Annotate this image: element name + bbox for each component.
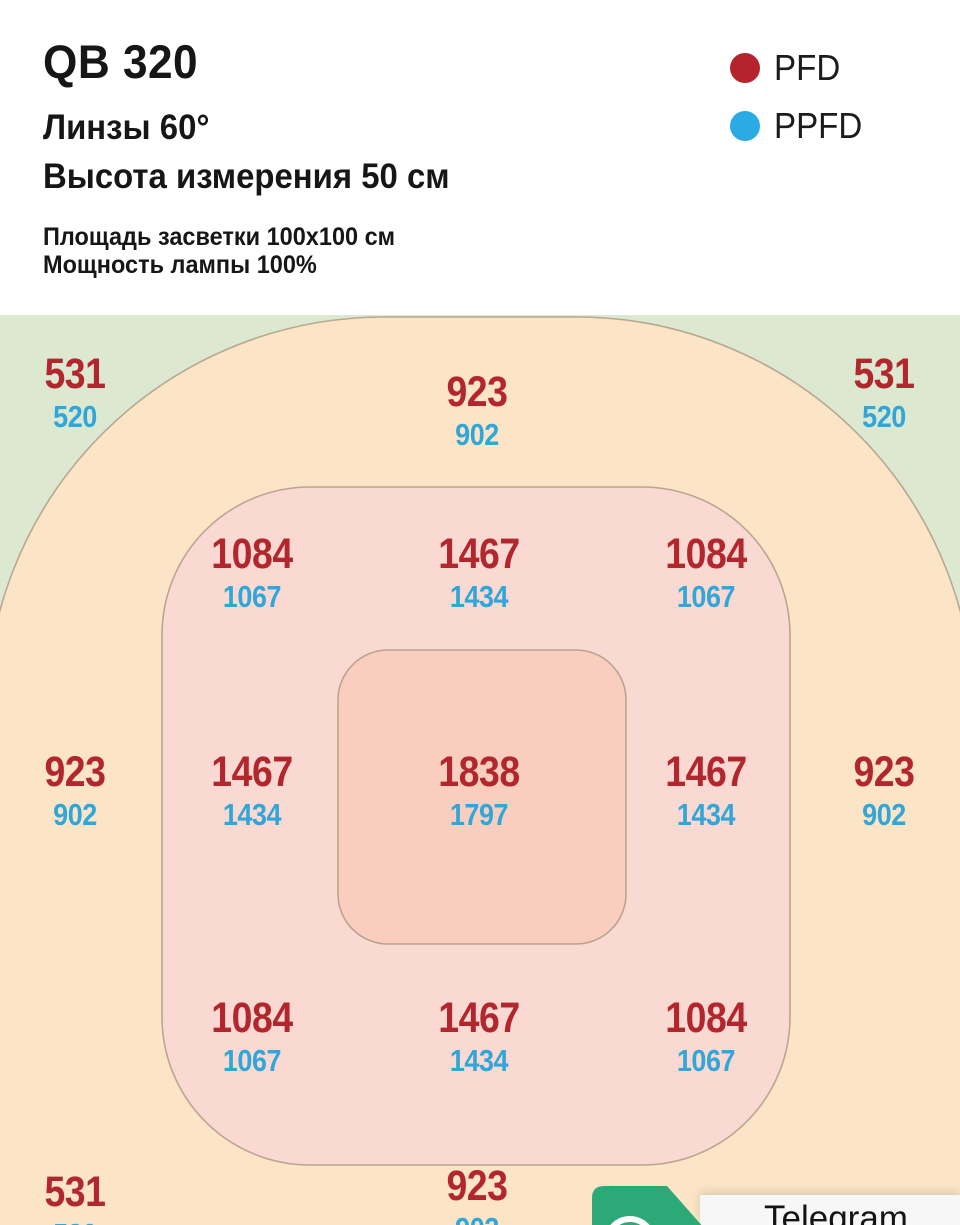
subtitle-measure-height: Высота измерения 50 см — [43, 159, 450, 194]
pfd-value: 1084 — [665, 533, 746, 576]
measurement-point-inner-top-edge: 14671434 — [438, 533, 519, 613]
note-light-area: Площадь засветки 100x100 см — [43, 225, 395, 250]
ppfd-value: 520 — [853, 400, 914, 433]
telegram-tag-icon — [585, 1183, 725, 1225]
telegram-banner: Telegram — [700, 1195, 960, 1225]
ppfd-value: 1434 — [438, 580, 519, 613]
legend-label-pfd: PFD — [774, 50, 840, 86]
ppfd-dot-icon — [730, 111, 760, 141]
ppfd-value: 1797 — [438, 798, 519, 831]
measurement-point-inner-bottom-edge: 14671434 — [438, 997, 519, 1077]
measurement-point-inner-bottom-left: 10841067 — [211, 997, 292, 1077]
note-lamp-power: Мощность лампы 100% — [43, 253, 317, 278]
measurement-point-top-left-corner: 531520 — [44, 353, 105, 433]
measurement-point-right-edge: 923902 — [853, 751, 914, 831]
ppfd-value: 902 — [853, 798, 914, 831]
measurement-point-left-edge: 923902 — [44, 751, 105, 831]
measurement-point-top-edge: 923902 — [446, 371, 507, 451]
legend: PFD PPFD — [730, 50, 870, 166]
light-distribution-infographic: QB 320 Линзы 60° Высота измерения 50 см … — [0, 0, 960, 1225]
pfd-value: 1467 — [438, 533, 519, 576]
ppfd-value: 520 — [44, 400, 105, 433]
pfd-dot-icon — [730, 53, 760, 83]
ppfd-value: 1434 — [211, 798, 292, 831]
measurement-point-bottom-edge: 923902 — [446, 1165, 507, 1225]
legend-item-pfd: PFD — [730, 50, 870, 86]
ppfd-value: 1067 — [665, 580, 746, 613]
pfd-value: 531 — [853, 353, 914, 396]
pfd-value: 531 — [44, 353, 105, 396]
ppfd-value: 902 — [446, 1212, 507, 1225]
measurement-point-inner-top-right: 10841067 — [665, 533, 746, 613]
ppfd-value: 902 — [44, 798, 105, 831]
pfd-value: 1084 — [665, 997, 746, 1040]
pfd-value: 1467 — [438, 997, 519, 1040]
measurement-point-inner-bottom-right: 10841067 — [665, 997, 746, 1077]
telegram-label: Telegram — [764, 1201, 908, 1225]
chart-area: 5315209239025315201084106714671434108410… — [0, 315, 960, 1225]
ppfd-value: 1434 — [665, 798, 746, 831]
pfd-value: 531 — [44, 1171, 105, 1214]
pfd-value: 1084 — [211, 533, 292, 576]
measurement-point-center: 18381797 — [438, 751, 519, 831]
ppfd-value: 1434 — [438, 1044, 519, 1077]
ppfd-value: 1067 — [665, 1044, 746, 1077]
ppfd-value: 1067 — [211, 580, 292, 613]
pfd-value: 1838 — [438, 751, 519, 794]
measurement-point-inner-right-edge: 14671434 — [665, 751, 746, 831]
ppfd-value: 520 — [44, 1218, 105, 1225]
pfd-value: 923 — [44, 751, 105, 794]
pfd-value: 923 — [446, 371, 507, 414]
ppfd-value: 902 — [446, 418, 507, 451]
page-title: QB 320 — [43, 38, 198, 85]
ppfd-value: 1067 — [211, 1044, 292, 1077]
legend-label-ppfd: PPFD — [774, 108, 862, 144]
pfd-value: 1084 — [211, 997, 292, 1040]
subtitle-lenses: Линзы 60° — [43, 110, 210, 145]
legend-item-ppfd: PPFD — [730, 108, 870, 144]
measurement-point-inner-top-left: 10841067 — [211, 533, 292, 613]
pfd-value: 923 — [446, 1165, 507, 1208]
pfd-value: 923 — [853, 751, 914, 794]
measurement-point-top-right-corner: 531520 — [853, 353, 914, 433]
measurement-point-bottom-left-corner: 531520 — [44, 1171, 105, 1225]
pfd-value: 1467 — [211, 751, 292, 794]
pfd-value: 1467 — [665, 751, 746, 794]
measurement-point-inner-left-edge: 14671434 — [211, 751, 292, 831]
